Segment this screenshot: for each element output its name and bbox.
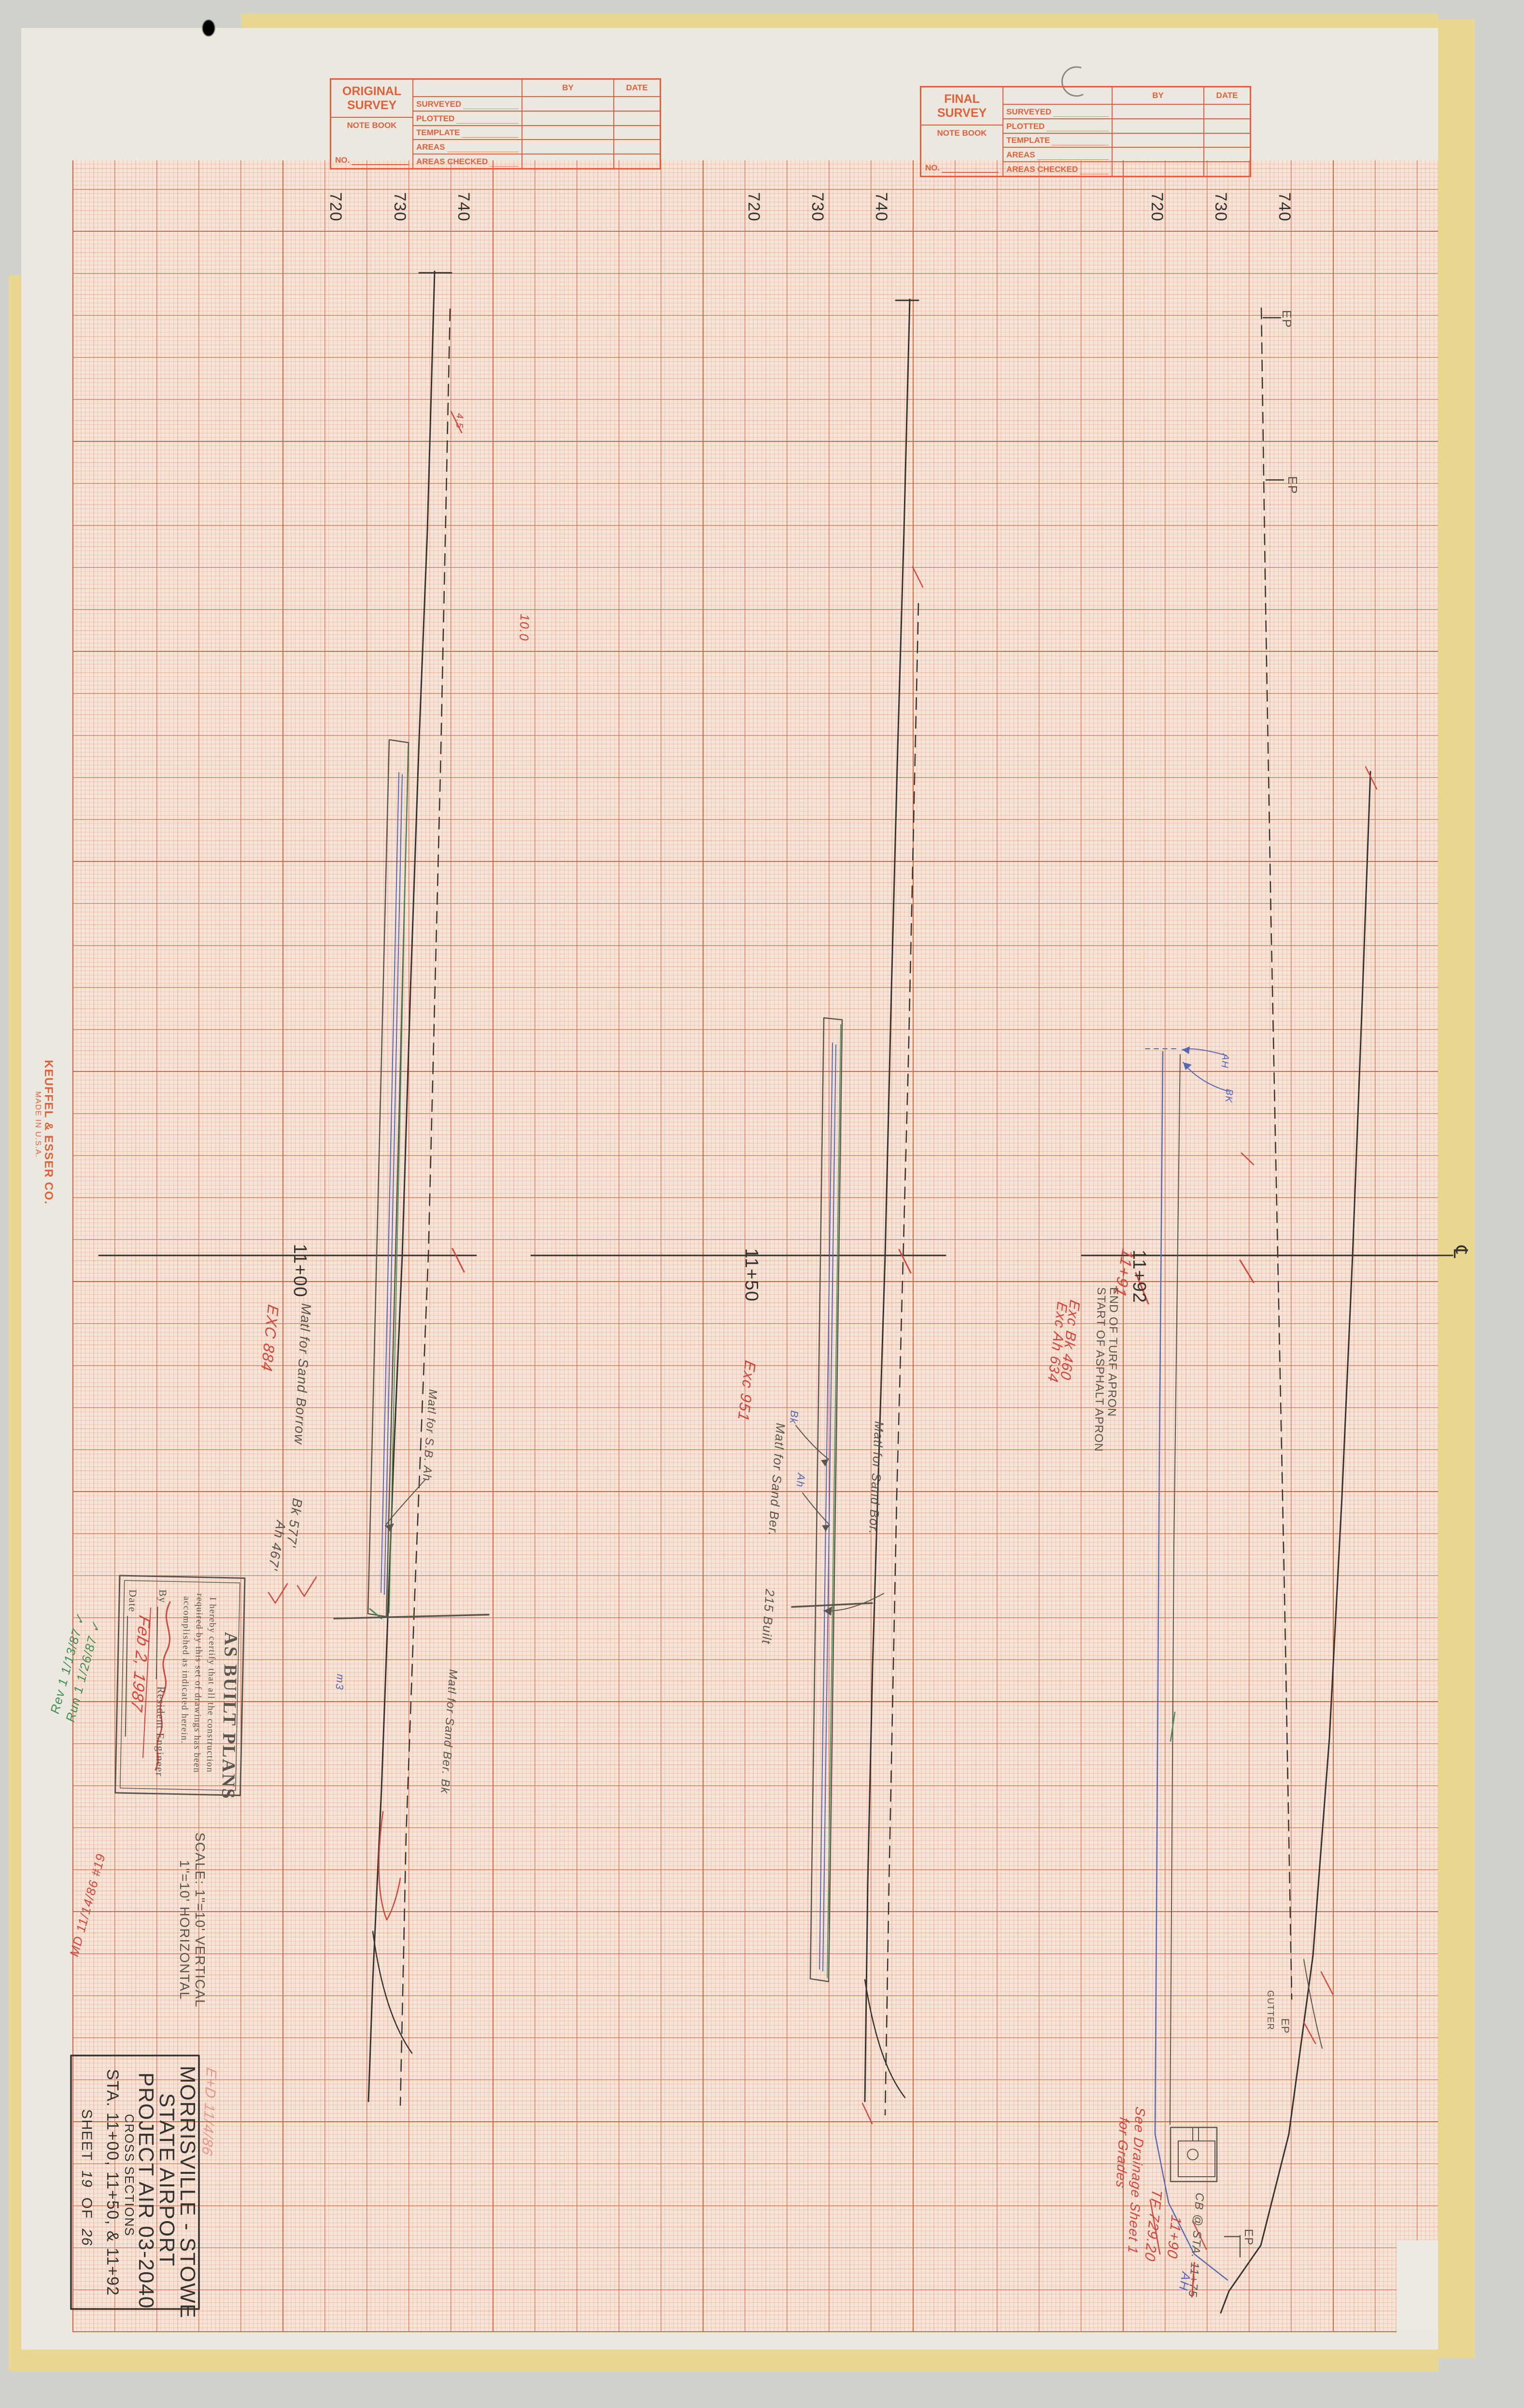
- title-line-3: PROJECT AIR 03-2040: [135, 2072, 156, 2309]
- by-header: BY: [1112, 87, 1203, 104]
- resident-engineer-label: Resident Engineer: [154, 1686, 167, 1777]
- s3-ah-blue-top: AH: [1219, 1053, 1230, 1069]
- s3-cb-new-station: 11+90: [1164, 2214, 1183, 2260]
- original-survey-stamp: ORIGINAL SURVEY NOTE BOOK NO. BY DATE SU…: [330, 78, 661, 169]
- scale-note-line-2: 1"=10' HORIZONTAL: [178, 1860, 191, 2000]
- section-11+00-lines: [99, 271, 489, 2105]
- header-blank: [1003, 87, 1112, 104]
- date-header: DATE: [613, 80, 660, 96]
- elev-730-s1: 730: [392, 192, 408, 222]
- s3-ep-label-2: EP: [1286, 476, 1299, 494]
- row-plotted: PLOTTED: [1003, 118, 1112, 133]
- elev-740-s1: 740: [455, 192, 472, 222]
- s3-end-turf-note: END OF TURF APRON: [1105, 1287, 1119, 1417]
- elev-740-s3: 740: [1276, 192, 1293, 222]
- row-areas-checked: AREAS CHECKED: [1003, 161, 1112, 176]
- station-11+50: 11+50: [742, 1248, 761, 1302]
- stamp-left-cell: ORIGINAL SURVEY NOTE BOOK NO.: [331, 80, 413, 168]
- s3-bk-blue-top: BK: [1223, 1088, 1234, 1103]
- stamp-grid: BY DATE SURVEYED PLOTTED TEMPLATE AREAS …: [1003, 87, 1250, 176]
- station-11+00: 11+00: [291, 1244, 309, 1297]
- row-surveyed: SURVEYED: [1003, 104, 1112, 118]
- stamp-left-cell: FINAL SURVEY NOTE BOOK NO.: [921, 87, 1003, 176]
- row-plotted: PLOTTED: [413, 111, 522, 125]
- section-linework: [0, 0, 1524, 2408]
- by-header: BY: [522, 80, 613, 96]
- note-book-label: NOTE BOOK: [921, 125, 1002, 164]
- sheet-word: SHEET: [79, 2109, 95, 2161]
- scale-note-line-1: SCALE: 1"=10' VERTICAL: [193, 1832, 207, 2008]
- elev-730-s3: 730: [1213, 192, 1229, 222]
- final-survey-stamp: FINAL SURVEY NOTE BOOK NO. BY DATE SURVE…: [920, 86, 1251, 177]
- s2-bk-label: Bk: [788, 1410, 800, 1424]
- no-label: NO.: [925, 163, 940, 173]
- title-line-4: CROSS SECTIONS: [123, 2114, 136, 2237]
- paper-brand-name: KEUFFEL & ESSER CO.: [42, 1060, 54, 1205]
- scanned-cross-section-sheet: ORIGINAL SURVEY NOTE BOOK NO. BY DATE SU…: [0, 0, 1524, 2408]
- s3-ep-label-4: EP: [1242, 2229, 1254, 2246]
- elev-720-s2: 720: [746, 192, 762, 222]
- of-word: OF: [79, 2197, 95, 2219]
- elev-720-s1: 720: [327, 192, 344, 222]
- row-areas: AREAS: [1003, 147, 1112, 161]
- s3-gutter-label: GUTTER: [1266, 1990, 1275, 2030]
- row-template: TEMPLATE: [1003, 133, 1112, 147]
- elev-740-s2: 740: [873, 192, 889, 222]
- no-blank-line: [352, 164, 409, 165]
- title-line-1: MORRISVILLE - STOWE: [177, 2066, 198, 2319]
- s2-ah-label: Ah: [794, 1473, 806, 1488]
- header-blank: [413, 80, 522, 96]
- sheet-number-line: SHEET 19 OF 26: [79, 2109, 94, 2246]
- sheet-total: 26: [79, 2229, 95, 2246]
- s1-m3-note: m3: [334, 1674, 346, 1690]
- elev-730-s2: 730: [809, 192, 826, 222]
- stamp-title: FINAL SURVEY: [931, 87, 993, 120]
- row-surveyed: SURVEYED: [413, 96, 522, 111]
- s1-red-45: 4.5: [454, 413, 465, 429]
- s3-ep-label-3: EP: [1280, 2018, 1290, 2034]
- s3-ah-blue-bottom: AH: [1177, 2271, 1193, 2292]
- date-header: DATE: [1203, 87, 1250, 104]
- no-blank-line: [942, 172, 999, 173]
- stamp-grid: BY DATE SURVEYED PLOTTED TEMPLATE AREAS …: [413, 80, 660, 168]
- centerline-symbol: ℄: [1451, 1246, 1470, 1259]
- catch-basin: [1171, 2127, 1217, 2182]
- by-label: By: [157, 1590, 169, 1604]
- row-template: TEMPLATE: [413, 125, 522, 140]
- row-areas: AREAS: [413, 139, 522, 154]
- date-label: Date: [127, 1590, 139, 1613]
- s3-for-grades-note: for Grades: [1114, 2116, 1131, 2190]
- no-field: NO.: [921, 163, 1002, 176]
- note-book-label: NOTE BOOK: [331, 117, 412, 156]
- as-built-title: AS BUILT PLANS: [219, 1632, 240, 1800]
- title-line-5: STA. 11+00, 11+50, & 11+92: [104, 2069, 121, 2296]
- elev-720-s3: 720: [1149, 192, 1165, 222]
- row-areas-checked: AREAS CHECKED: [413, 154, 522, 168]
- section-11+50-lines: [531, 299, 945, 2124]
- no-label: NO.: [335, 155, 350, 165]
- no-field: NO.: [331, 155, 412, 168]
- sheet-no: 19: [79, 2170, 95, 2188]
- title-line-2: STATE AIRPORT: [156, 2093, 177, 2267]
- stamp-title: ORIGINAL SURVEY: [340, 80, 403, 113]
- s1-red-100: 10.0: [518, 614, 531, 641]
- as-built-cert-3: accomplished as indicated herein.: [180, 1596, 191, 1744]
- s3-start-asphalt-note: START OF ASPHALT APRON: [1092, 1287, 1107, 1452]
- s3-ep-label-1: EP: [1281, 310, 1293, 328]
- s2-built-note: 215 Built: [760, 1589, 776, 1645]
- paper-brand-origin: MADE IN U.S.A.: [34, 1091, 42, 1158]
